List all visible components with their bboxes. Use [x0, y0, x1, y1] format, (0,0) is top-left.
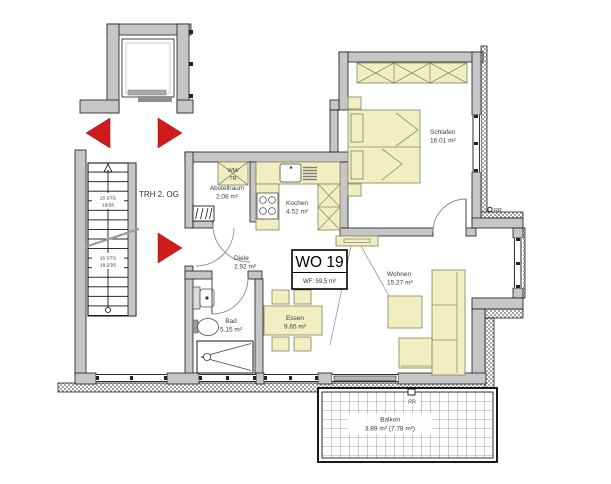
chair	[272, 337, 289, 351]
stair-upper-ratio: 19/26	[102, 203, 114, 209]
pillow	[351, 114, 363, 142]
room-label-schlafen: Schlafen	[430, 129, 456, 136]
room-area-abstellraum: 2.08 m²	[216, 194, 239, 201]
chair	[294, 290, 311, 304]
staircase: 15 STG 19/26 16 STG 18,2/26 TRH 2. OG	[75, 150, 179, 375]
chair	[272, 290, 289, 304]
bedroom-door-arc	[433, 199, 466, 232]
window	[513, 238, 523, 288]
room-label-abstellraum: Abstellraum	[210, 185, 244, 192]
pillow	[351, 151, 363, 179]
wc-tank	[193, 287, 200, 309]
chair	[294, 337, 311, 351]
washer-dryer-label-2: TR	[229, 176, 236, 182]
unit-label: WO 19	[295, 254, 343, 271]
kitchen	[256, 162, 340, 230]
floor-plan: 15 STG 19/26 16 STG 18,2/26 TRH 2. OG	[0, 0, 611, 484]
rr-wall-label: RR	[494, 208, 502, 214]
arrow-left-icon	[86, 118, 110, 148]
room-label-kochen: Kochen	[286, 200, 308, 207]
stair-lower-ratio: 18,2/26	[100, 263, 116, 269]
room-area-diele: 2.92 m²	[234, 264, 257, 271]
living-room	[330, 236, 465, 375]
window	[472, 115, 481, 172]
arrow-entrance-icon	[158, 233, 182, 263]
elevator-car	[122, 39, 174, 97]
room-area-bad: 5.15 m²	[220, 327, 243, 334]
bath-door-arc	[212, 278, 248, 314]
stove	[257, 193, 278, 219]
rr-balcony-label: RR	[408, 400, 416, 406]
nightstand	[348, 184, 361, 196]
unit-label-box: WO 19 WF: 59,5 m²	[292, 250, 347, 289]
stairwell-label: TRH 2. OG	[139, 190, 179, 199]
floor-plan-svg: 15 STG 19/26 16 STG 18,2/26 TRH 2. OG	[0, 0, 611, 484]
tv-sideboard	[336, 236, 378, 246]
room-label-wohnen: Wohnen	[387, 271, 411, 278]
window	[96, 374, 167, 382]
arrow-right-icon	[158, 118, 182, 148]
coffee-table	[388, 296, 422, 328]
elevator	[80, 24, 193, 113]
bathroom-sink	[198, 319, 219, 336]
room-area-essen: 9.65 m²	[284, 324, 307, 331]
shower-tub	[197, 341, 253, 373]
stair-upper-steps: 15 STG	[100, 196, 117, 202]
window	[199, 374, 256, 382]
sofa-horizontal	[399, 338, 432, 368]
room-label-balkon: Balkon	[380, 417, 400, 424]
room-area-kochen: 4.52 m²	[286, 209, 309, 216]
room-label-essen: Essen	[286, 315, 304, 322]
entrance-door-arc	[196, 228, 234, 266]
window	[264, 374, 318, 382]
shelf-symbol	[193, 206, 214, 221]
unit-area: WF: 59,5 m²	[303, 279, 336, 285]
washer-dryer-label-1: WM/	[227, 168, 239, 174]
nightstand	[348, 97, 361, 109]
room-area-balkon: 3.89 m² (7.78 m²)	[365, 426, 415, 433]
balcony-door	[332, 374, 398, 382]
room-area-wohnen: 15.27 m²	[387, 280, 413, 287]
room-label-diele: Diele	[234, 255, 249, 262]
room-area-schlafen: 16.01 m²	[430, 138, 456, 145]
stair-lower-steps: 16 STG	[100, 256, 117, 262]
balcony: RR Balkon 3.89 m² (7.78 m²)	[318, 388, 497, 462]
sofa-vertical	[432, 270, 465, 375]
room-label-bad: Bad	[225, 318, 237, 325]
